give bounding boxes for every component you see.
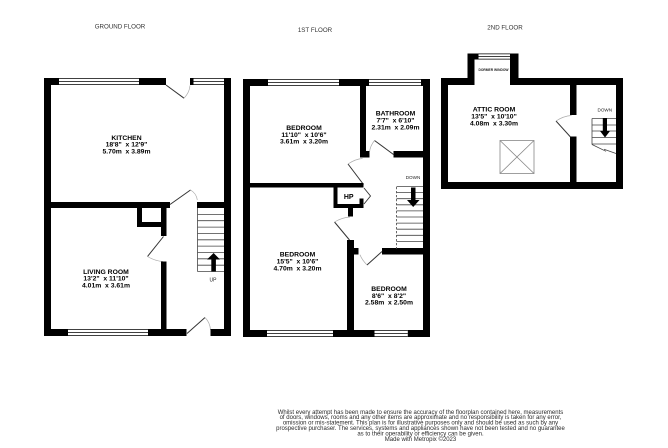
svg-text:UP: UP	[210, 278, 218, 284]
svg-text:4.70m x 3.20m: 4.70m x 3.20m	[274, 265, 322, 272]
svg-text:GROUND FLOOR: GROUND FLOOR	[95, 23, 146, 30]
svg-text:DOWN: DOWN	[406, 175, 421, 180]
svg-text:1ST FLOOR: 1ST FLOOR	[298, 27, 333, 34]
svg-text:Made with Metropix ©2023: Made with Metropix ©2023	[385, 436, 457, 443]
svg-text:DORMER WINDOW: DORMER WINDOW	[478, 68, 509, 72]
svg-text:5.70m x 3.89m: 5.70m x 3.89m	[103, 148, 151, 155]
svg-text:4.01m x 3.61m: 4.01m x 3.61m	[82, 282, 130, 289]
svg-text:3.61m x 3.20m: 3.61m x 3.20m	[280, 139, 328, 146]
svg-text:2.31m x 2.09m: 2.31m x 2.09m	[372, 124, 420, 131]
svg-text:DOWN: DOWN	[598, 107, 613, 112]
svg-text:HP: HP	[344, 194, 354, 201]
svg-text:4.08m x 3.30m: 4.08m x 3.30m	[470, 120, 518, 127]
svg-text:2ND FLOOR: 2ND FLOOR	[487, 25, 523, 32]
svg-text:2.58m x 2.50m: 2.58m x 2.50m	[365, 300, 413, 307]
